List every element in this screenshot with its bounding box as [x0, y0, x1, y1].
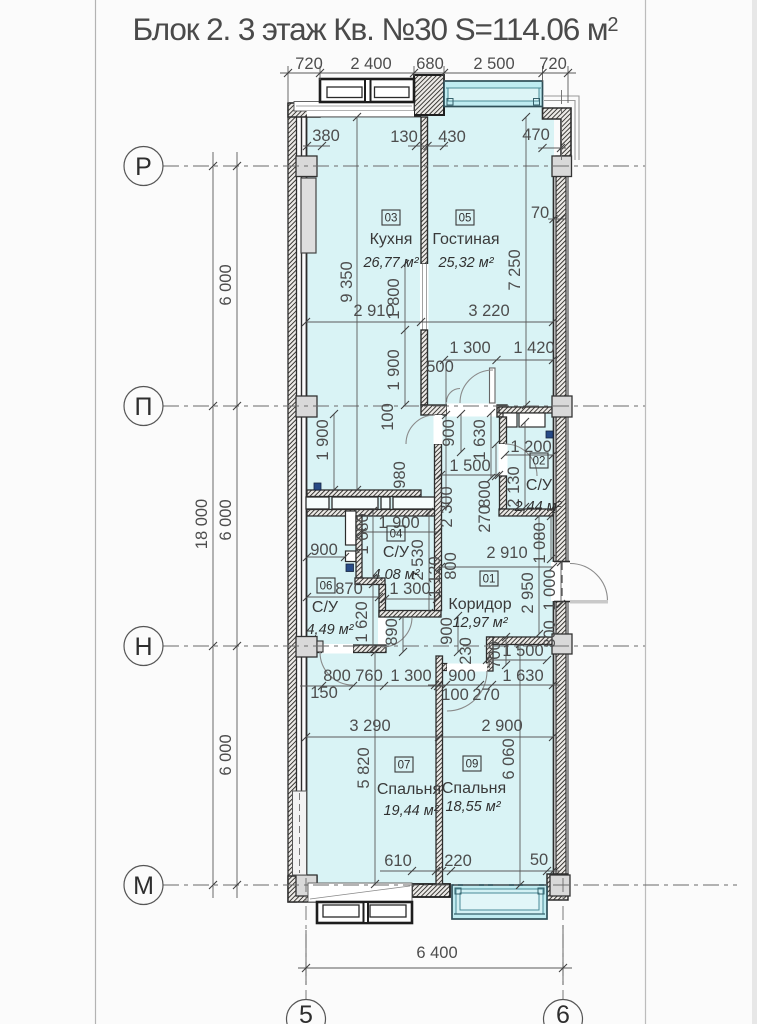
svg-text:4,49 м²: 4,49 м²: [306, 622, 354, 638]
svg-text:1 300: 1 300: [390, 667, 431, 685]
svg-text:230: 230: [457, 637, 475, 665]
svg-text:720: 720: [295, 55, 323, 73]
svg-text:5 820: 5 820: [355, 747, 373, 788]
svg-text:26,77 м²: 26,77 м²: [362, 255, 419, 271]
svg-text:760: 760: [355, 667, 383, 685]
svg-text:150: 150: [310, 684, 338, 702]
svg-text:1 500: 1 500: [449, 457, 490, 475]
svg-text:2 300: 2 300: [438, 486, 456, 527]
svg-text:С/У: С/У: [383, 544, 410, 561]
svg-text:900: 900: [448, 667, 476, 685]
svg-text:19,44 м²: 19,44 м²: [383, 803, 439, 819]
svg-text:1 620: 1 620: [353, 601, 371, 642]
svg-text:2,44 м²: 2,44 м²: [513, 499, 562, 515]
svg-text:П: П: [135, 393, 153, 421]
svg-text:6 000: 6 000: [217, 264, 235, 305]
svg-text:4,08 м²: 4,08 м²: [372, 567, 420, 583]
svg-text:03: 03: [385, 213, 398, 225]
svg-text:Р: Р: [135, 153, 152, 181]
svg-text:1 080: 1 080: [531, 522, 549, 563]
svg-text:07: 07: [398, 760, 411, 772]
svg-text:430: 430: [438, 128, 466, 146]
svg-text:50: 50: [530, 851, 548, 869]
svg-text:800: 800: [476, 480, 494, 508]
svg-text:1 630: 1 630: [471, 419, 489, 460]
svg-text:100: 100: [379, 403, 397, 431]
svg-text:01: 01: [483, 574, 496, 586]
svg-text:Гостиная: Гостиная: [432, 231, 499, 248]
svg-text:Спальня: Спальня: [442, 780, 506, 797]
svg-text:25,32 м²: 25,32 м²: [437, 255, 494, 271]
svg-text:890: 890: [383, 618, 401, 646]
svg-text:02: 02: [533, 456, 546, 468]
svg-text:6 060: 6 060: [500, 738, 518, 779]
svg-text:7 250: 7 250: [506, 249, 524, 290]
svg-text:3 290: 3 290: [349, 717, 390, 735]
svg-text:980: 980: [391, 461, 409, 489]
svg-text:9 350: 9 350: [338, 261, 356, 302]
svg-text:5: 5: [299, 1001, 313, 1024]
svg-text:270: 270: [472, 686, 500, 704]
svg-text:6 000: 6 000: [217, 734, 235, 775]
svg-text:Кухня: Кухня: [370, 231, 413, 248]
svg-text:09: 09: [466, 759, 479, 771]
svg-text:6 400: 6 400: [416, 944, 457, 962]
svg-text:900: 900: [310, 541, 338, 559]
svg-text:С/У: С/У: [312, 599, 339, 616]
svg-text:870: 870: [335, 580, 363, 598]
svg-text:2 900: 2 900: [481, 717, 522, 735]
svg-text:Н: Н: [134, 633, 152, 661]
svg-text:1 420: 1 420: [513, 339, 554, 357]
svg-text:700: 700: [486, 641, 504, 669]
svg-text:1 900: 1 900: [385, 349, 403, 390]
svg-text:900: 900: [440, 419, 458, 447]
svg-text:2 950: 2 950: [519, 572, 537, 613]
svg-text:270: 270: [476, 505, 494, 533]
svg-text:1 000: 1 000: [541, 569, 559, 610]
svg-text:3 220: 3 220: [468, 302, 509, 320]
svg-text:05: 05: [459, 213, 472, 225]
svg-text:2 400: 2 400: [350, 55, 391, 73]
svg-text:130: 130: [390, 128, 418, 146]
svg-text:12,97 м²: 12,97 м²: [452, 615, 508, 631]
svg-text:6 000: 6 000: [217, 499, 235, 540]
svg-text:470: 470: [522, 126, 550, 144]
svg-text:1 630: 1 630: [502, 667, 543, 685]
svg-text:1 900: 1 900: [314, 419, 332, 460]
svg-text:С/У: С/У: [526, 477, 553, 494]
svg-text:06: 06: [320, 581, 333, 593]
svg-text:04: 04: [390, 529, 403, 541]
svg-text:220: 220: [444, 852, 472, 870]
svg-text:18 000: 18 000: [193, 499, 211, 549]
svg-text:800: 800: [541, 620, 559, 648]
svg-text:1 500: 1 500: [502, 642, 543, 660]
svg-text:720: 720: [539, 55, 567, 73]
svg-text:1 300: 1 300: [449, 339, 490, 357]
svg-text:500: 500: [426, 358, 454, 376]
svg-text:100: 100: [441, 686, 469, 704]
svg-text:18,55 м²: 18,55 м²: [445, 799, 501, 815]
svg-text:70: 70: [531, 204, 549, 222]
svg-text:Коридор: Коридор: [448, 596, 511, 613]
svg-text:6: 6: [556, 1001, 570, 1024]
svg-text:1 680: 1 680: [354, 513, 372, 554]
svg-text:2 910: 2 910: [486, 544, 527, 562]
svg-text:800: 800: [442, 552, 460, 580]
svg-text:610: 610: [384, 852, 412, 870]
svg-text:2 500: 2 500: [473, 55, 514, 73]
svg-text:2 910: 2 910: [353, 302, 394, 320]
svg-text:380: 380: [312, 127, 340, 145]
svg-text:800: 800: [323, 667, 351, 685]
svg-text:М: М: [133, 872, 154, 900]
svg-text:680: 680: [416, 55, 444, 73]
svg-text:Блок 2. 3 этаж Кв. №30 S=114.0: Блок 2. 3 этаж Кв. №30 S=114.06 м2: [133, 11, 619, 47]
svg-text:Спальня: Спальня: [377, 781, 441, 798]
